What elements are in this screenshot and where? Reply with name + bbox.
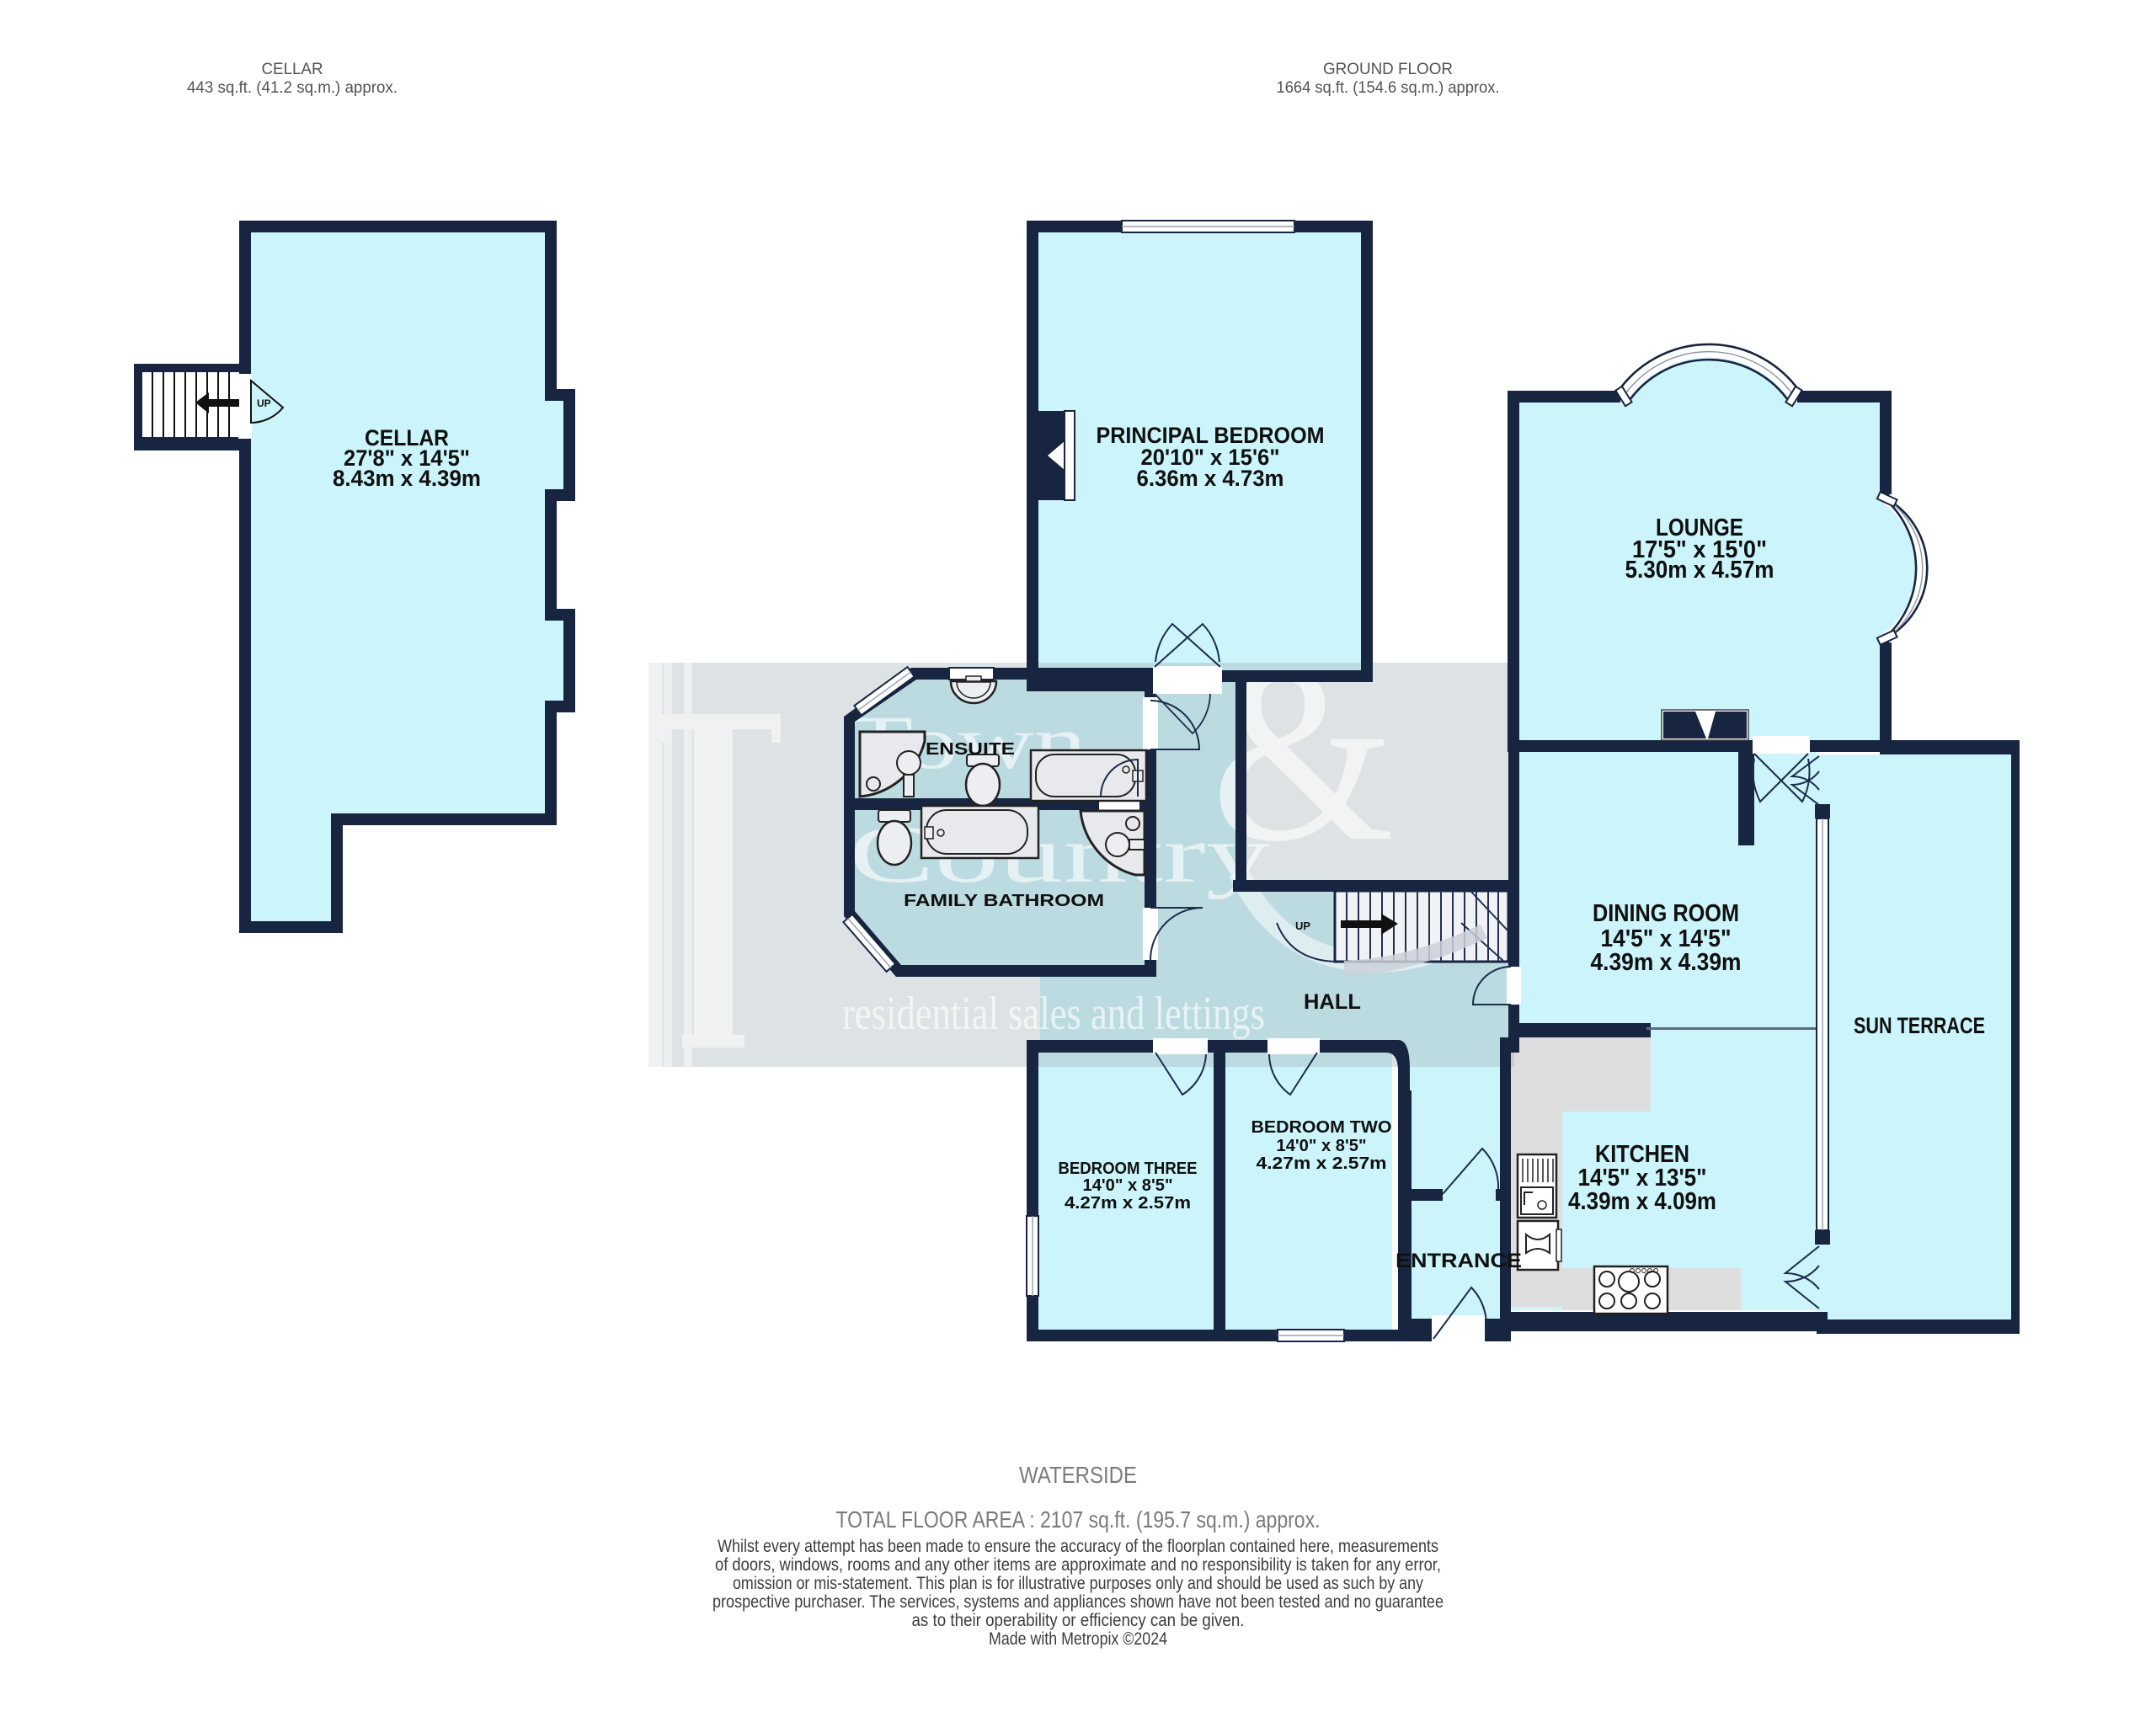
- svg-text:1664 sq.ft. (154.6 sq.m.) appr: 1664 sq.ft. (154.6 sq.m.) approx.: [1277, 79, 1500, 97]
- svg-text:Country: Country: [849, 809, 1271, 899]
- svg-text:GROUND FLOOR: GROUND FLOOR: [1323, 61, 1453, 78]
- svg-text:WATERSIDE: WATERSIDE: [1019, 1462, 1137, 1488]
- svg-text:BEDROOM TWO: BEDROOM TWO: [1251, 1118, 1392, 1137]
- svg-text:Whilst every attempt has been: Whilst every attempt has been made to en…: [718, 1537, 1438, 1556]
- svg-text:omission or mis-statement. Thi: omission or mis-statement. This plan is …: [733, 1574, 1423, 1593]
- svg-text:ENTRANCE: ENTRANCE: [1396, 1250, 1522, 1272]
- svg-text:ENSUITE: ENSUITE: [926, 740, 1015, 759]
- svg-text:UP: UP: [257, 397, 271, 409]
- svg-text:DINING ROOM: DINING ROOM: [1593, 900, 1739, 927]
- svg-text:residential sales and lettings: residential sales and lettings: [842, 988, 1265, 1040]
- svg-text:UP: UP: [1295, 920, 1310, 932]
- svg-text:as to their operability or eff: as to their operability or efficiency ca…: [912, 1611, 1245, 1630]
- svg-text:14'0" x 8'5": 14'0" x 8'5": [1277, 1137, 1367, 1155]
- svg-text:of doors, windows, rooms and a: of doors, windows, rooms and any other i…: [715, 1555, 1441, 1575]
- svg-text:443 sq.ft. (41.2 sq.m.) approx: 443 sq.ft. (41.2 sq.m.) approx.: [187, 79, 398, 97]
- svg-text:TOTAL FLOOR AREA : 2107 sq.ft.: TOTAL FLOOR AREA : 2107 sq.ft. (195.7 sq…: [836, 1506, 1321, 1533]
- svg-text:SUN TERRACE: SUN TERRACE: [1854, 1013, 1985, 1038]
- svg-text:8.43m x 4.39m: 8.43m x 4.39m: [333, 466, 481, 491]
- svg-text:CELLAR: CELLAR: [262, 61, 323, 78]
- svg-text:14'0" x 8'5": 14'0" x 8'5": [1083, 1176, 1173, 1195]
- svg-text:BEDROOM THREE: BEDROOM THREE: [1059, 1160, 1198, 1178]
- svg-text:HALL: HALL: [1304, 990, 1361, 1014]
- svg-text:4.39m x 4.39m: 4.39m x 4.39m: [1591, 949, 1742, 976]
- svg-text:Made with Metropix ©2024: Made with Metropix ©2024: [989, 1629, 1167, 1649]
- svg-text:5.30m x 4.57m: 5.30m x 4.57m: [1625, 557, 1774, 584]
- svg-text:6.36m x 4.73m: 6.36m x 4.73m: [1137, 466, 1284, 491]
- svg-text:FAMILY BATHROOM: FAMILY BATHROOM: [904, 892, 1104, 910]
- svg-text:prospective purchaser. The ser: prospective purchaser. The services, sys…: [712, 1592, 1444, 1612]
- svg-text:4.27m x 2.57m: 4.27m x 2.57m: [1065, 1194, 1191, 1213]
- svg-text:4.39m x 4.09m: 4.39m x 4.09m: [1568, 1188, 1716, 1215]
- svg-text:4.27m x 2.57m: 4.27m x 2.57m: [1257, 1154, 1387, 1173]
